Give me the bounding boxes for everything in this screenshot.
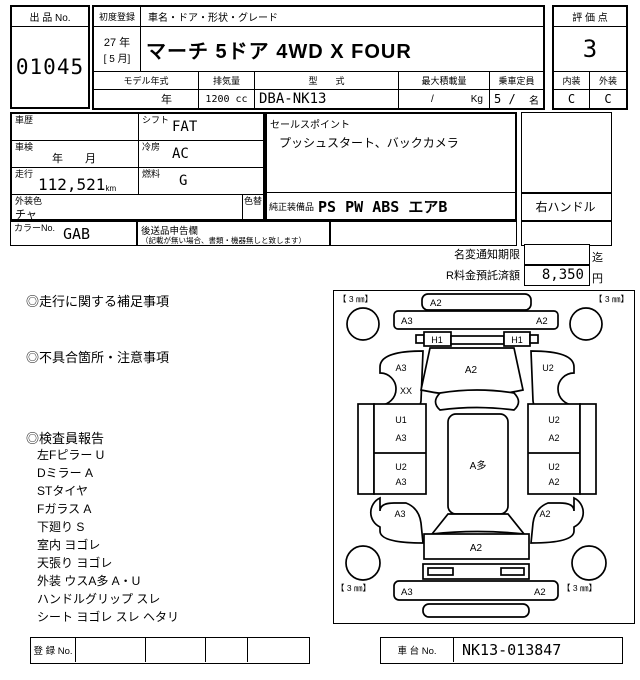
ac-value: AC — [172, 146, 189, 162]
sales-point-cell: セールスポイント プッシュスタート、バックカメラ — [267, 114, 515, 193]
wheel-front-left — [347, 308, 379, 340]
max-load-unit: Kg — [471, 94, 483, 105]
first-reg-year: 27 年 — [104, 34, 130, 50]
history-label: 車歴 — [15, 116, 33, 125]
history-cell: 車歴 — [12, 114, 139, 141]
max-load-slash: / — [405, 94, 434, 105]
recolor-label: 色替 — [243, 195, 263, 208]
headlamp-left-grade: H1 — [431, 335, 443, 345]
model-year-label: モデル年式 — [94, 72, 199, 90]
taillight-right — [501, 568, 524, 575]
inspector-item: ハンドルグリップ スレ — [37, 590, 179, 608]
door-rr-grade-b: A2 — [548, 477, 559, 487]
inspector-item: 下廻り S — [37, 518, 179, 536]
auction-no-box: 出 品 No. 01045 — [10, 5, 90, 109]
right-tall-empty-box — [521, 112, 612, 193]
defect-title: ◎不具合箇所・注意事項 — [26, 347, 169, 366]
headlamp-bar — [451, 336, 504, 344]
inspector-item: 天張り ヨゴレ — [37, 554, 179, 572]
tailgate-grade: A2 — [470, 543, 483, 554]
fender-fl-grade-b: XX — [400, 386, 412, 396]
front-face-bar — [394, 311, 558, 329]
taillight-left — [428, 568, 453, 575]
inspection-value: 年 月 — [52, 150, 96, 166]
ext-color-label: 外装色 — [15, 197, 42, 206]
recycle-value: 8,350 — [525, 266, 587, 284]
auction-no-value: 01045 — [12, 27, 88, 107]
inspector-list: 左Fピラー U Dミラー A STタイヤ Fガラス A 下廻り S 室内 ヨゴレ… — [37, 446, 179, 626]
score-label: 評 価 点 — [554, 7, 626, 27]
score-value: 3 — [554, 27, 626, 72]
reg-no-cell — [146, 638, 206, 662]
tire-note-bl: 【 3 ㎜】 — [336, 583, 371, 593]
wheel-rear-right — [572, 546, 606, 580]
model-year-value: 年 — [94, 90, 199, 108]
later-items-empty-box — [330, 221, 517, 246]
inspector-title: ◎検査員報告 — [26, 428, 104, 447]
headlamp-right-grade: H1 — [511, 335, 523, 345]
fender-rl-grade: A3 — [394, 509, 405, 519]
ext-color-value: チャ — [15, 206, 37, 222]
fuel-cell: 燃料 G — [139, 168, 263, 195]
door-rr-grade-a: U2 — [548, 462, 560, 472]
handle-value: 右ハンドル — [522, 194, 609, 218]
fender-fr-grade: U2 — [542, 363, 554, 373]
equip-label: 純正装備品 — [267, 200, 314, 213]
inspector-item: Dミラー A — [37, 464, 179, 482]
equip-value: PS PW ABS エアB — [314, 196, 447, 217]
rear-face-left-grade: A3 — [401, 587, 413, 598]
rename-label: 名変通知期限 — [390, 246, 520, 262]
interior-value: C — [554, 90, 590, 108]
sales-equip-box: セールスポイント プッシュスタート、バックカメラ 純正装備品 PS PW ABS… — [265, 112, 517, 221]
displacement-value: 1200 cc — [199, 90, 255, 108]
capacity-value: 5 / — [494, 92, 516, 106]
score-box: 評 価 点 3 内装 外装 C C — [552, 5, 628, 110]
car-name-label: 車名・ドア・形状・グレード — [141, 7, 543, 27]
recycle-label: R料金預託済額 — [390, 267, 520, 283]
inspector-item: 左Fピラー U — [37, 446, 179, 464]
inspection-label: 車検 — [15, 143, 33, 152]
door-fr-grade-a: U2 — [548, 415, 560, 425]
shift-label: シフト — [142, 116, 169, 125]
supplement-title: ◎走行に関する補足事項 — [26, 291, 169, 310]
rename-suffix: 迄 — [592, 249, 603, 265]
spec-table: 初度登録 車名・ドア・形状・グレード 27 年 [ 5 月] マーチ 5ドア 4… — [92, 5, 545, 110]
tire-note-tr: 【 3 ㎜】 — [594, 294, 629, 304]
roof-grade: A多 — [470, 459, 487, 472]
equip-cell: 純正装備品 PS PW ABS エアB — [267, 193, 515, 219]
tire-note-tl: 【 3 ㎜】 — [338, 294, 373, 304]
car-name-value: マーチ 5ドア 4WD X FOUR — [141, 27, 543, 72]
inspector-item: 室内 ヨゴレ — [37, 536, 179, 554]
color-no-box: カラーNo. GAB — [10, 221, 137, 246]
max-load-value: / Kg — [399, 90, 490, 108]
chassis-no-label: 車 台 No. — [381, 638, 454, 662]
color-no-value: GAB — [63, 225, 90, 243]
color-no-label: カラーNo. — [14, 224, 55, 233]
mileage-cell: 走行 112,521 km — [12, 168, 139, 195]
ac-label: 冷房 — [142, 143, 160, 152]
sill-left — [358, 404, 374, 494]
rename-value-box — [524, 244, 590, 265]
handle-box: 右ハンドル — [521, 193, 612, 221]
door-rl-grade-a: U2 — [395, 462, 407, 472]
damage-diagram-box: 【 3 ㎜】 【 3 ㎜】 【 3 ㎜】 【 3 ㎜】 A2 A3 A2 H1 … — [333, 290, 635, 624]
recycle-suffix: 円 — [592, 270, 603, 286]
model-code-value: DBA-NK13 — [255, 90, 399, 108]
fuel-value: G — [179, 173, 187, 189]
front-face-right-grade: A2 — [536, 316, 548, 327]
front-face-left-grade: A3 — [401, 316, 413, 327]
reg-no-table: 登 録 No. — [30, 637, 310, 664]
mileage-unit: km — [105, 184, 116, 193]
capacity-value-cell: 5 / 名 — [490, 90, 543, 108]
rear-window — [432, 514, 524, 534]
recycle-value-box: 8,350 — [524, 265, 590, 286]
door-fl-grade-b: A3 — [395, 433, 406, 443]
inspection-cell: 車検 年 月 — [12, 141, 139, 168]
door-rl-grade-b: A3 — [395, 477, 406, 487]
sales-point-value: プッシュスタート、バックカメラ — [267, 131, 459, 151]
auction-no-label: 出 品 No. — [12, 7, 88, 27]
wheel-rear-left — [346, 546, 380, 580]
auction-sheet: 出 品 No. 01045 初度登録 車名・ドア・形状・グレード 27 年 [ … — [0, 0, 640, 680]
reg-no-label: 登 録 No. — [31, 638, 76, 662]
capacity-unit: 名 — [529, 92, 539, 107]
damage-diagram: 【 3 ㎜】 【 3 ㎜】 【 3 ㎜】 【 3 ㎜】 A2 A3 A2 H1 … — [334, 291, 633, 622]
max-load-label: 最大積載量 — [399, 72, 490, 90]
shift-cell: シフト FAT — [139, 114, 263, 141]
exterior-label: 外装 — [590, 72, 626, 90]
windshield — [436, 390, 519, 410]
headlamp-tab-right — [530, 335, 538, 343]
rear-bumper-bottom — [423, 604, 529, 617]
first-reg-label: 初度登録 — [94, 7, 141, 27]
ac-cell: 冷房 AC — [139, 141, 263, 168]
tire-note-br: 【 3 ㎜】 — [562, 583, 597, 593]
headlamp-tab-left — [416, 335, 424, 343]
fender-rear-right-shape — [531, 498, 583, 543]
fender-rr-grade: A2 — [539, 509, 550, 519]
inspector-item: STタイヤ — [37, 482, 179, 500]
inspector-item: シート ヨゴレ スレ ヘタリ — [37, 608, 179, 626]
chassis-no-value: NK13-013847 — [454, 638, 621, 662]
model-code-label: 型 式 — [255, 72, 399, 90]
chassis-no-table: 車 台 No. NK13-013847 — [380, 637, 623, 664]
inspector-item: Fガラス A — [37, 500, 179, 518]
wheel-front-right — [570, 308, 602, 340]
fender-fl-grade-a: A3 — [395, 363, 406, 373]
reg-no-cell — [248, 638, 308, 662]
fender-rear-left-shape — [371, 498, 423, 543]
reg-no-cell — [206, 638, 248, 662]
right-bottom-empty-box — [521, 221, 612, 246]
first-reg-value: 27 年 [ 5 月] — [94, 27, 141, 72]
displacement-label: 排気量 — [199, 72, 255, 90]
reg-no-cell — [76, 638, 146, 662]
interior-label: 内装 — [554, 72, 590, 90]
fuel-label: 燃料 — [142, 170, 160, 179]
mileage-value: 112,521 — [38, 175, 105, 194]
sales-point-label: セールスポイント — [267, 114, 350, 131]
exterior-value: C — [590, 90, 626, 108]
door-fr-grade-b: A2 — [548, 433, 559, 443]
capacity-label: 乗車定員 — [490, 72, 543, 90]
front-bumper-grade: A2 — [430, 298, 442, 309]
inspector-item: 外装 ウスA多 A・U — [37, 572, 179, 590]
first-reg-month: [ 5 月] — [104, 50, 131, 65]
later-items-box: 後送品申告欄 （記載が無い場合、書類・機器無しと致します） — [137, 221, 330, 246]
shift-value: FAT — [172, 119, 197, 135]
hood-grade: A2 — [465, 365, 478, 376]
mileage-label: 走行 — [15, 170, 33, 179]
recolor-cell: 色替 — [242, 195, 263, 219]
door-fl-grade-a: U1 — [395, 415, 407, 425]
details-table: 車歴 シフト FAT 車検 年 月 冷房 AC 走行 112,521 km 燃料… — [10, 112, 265, 221]
ext-color-cell: 外装色 チャ — [12, 195, 242, 219]
later-items-note: （記載が無い場合、書類・機器無しと致します） — [141, 235, 306, 246]
rear-face-right-grade: A2 — [534, 587, 546, 598]
sill-right — [580, 404, 596, 494]
